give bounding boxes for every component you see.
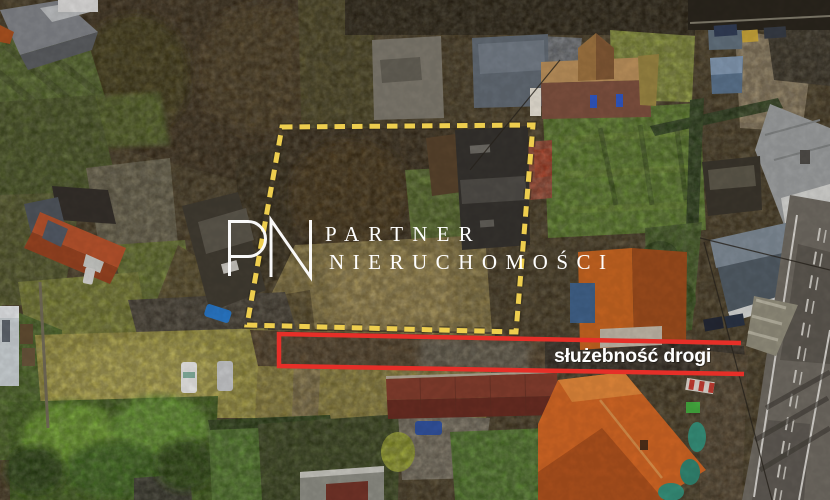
svg-text:PARTNER: PARTNER bbox=[325, 222, 482, 246]
svg-text:NIERUCHOMOŚCI: NIERUCHOMOŚCI bbox=[329, 250, 615, 274]
svg-text:służebność drogi: służebność drogi bbox=[554, 345, 711, 367]
